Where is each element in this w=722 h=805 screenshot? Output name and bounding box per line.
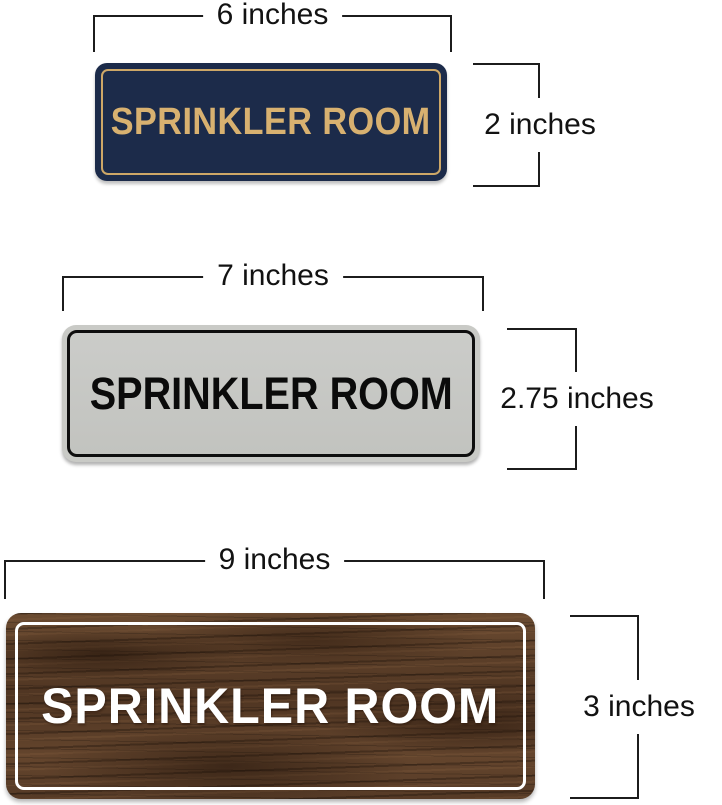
height-dimension-bracket-wood: 3 inches — [570, 615, 639, 799]
width-dimension-bracket-silver: 7 inches — [62, 276, 484, 311]
width-dimension-label-silver: 7 inches — [203, 259, 343, 293]
height-dimension-label-navy: 2 inches — [478, 98, 602, 152]
height-dimension-bracket-silver: 2.75 inches — [507, 328, 577, 470]
sign-inner-border-navy: SPRINKLER ROOM — [101, 69, 441, 175]
product-image: 6 inches SPRINKLER ROOM 2 inches 7 inche… — [0, 0, 722, 805]
sign-inner-border-silver: SPRINKLER ROOM — [67, 330, 475, 457]
sign-inner-border-wood: SPRINKLER ROOM — [15, 622, 526, 790]
width-dimension-label-navy: 6 inches — [203, 0, 343, 32]
sprinkler-sign-silver: SPRINKLER ROOM — [62, 325, 480, 462]
height-dimension-label-silver: 2.75 inches — [494, 372, 659, 426]
sprinkler-sign-navy: SPRINKLER ROOM — [95, 63, 447, 181]
sprinkler-sign-wood: SPRINKLER ROOM — [6, 613, 535, 799]
width-dimension-label-wood: 9 inches — [205, 543, 345, 577]
height-dimension-label-wood: 3 inches — [577, 680, 701, 734]
sign-text-navy: SPRINKLER ROOM — [111, 103, 431, 141]
width-dimension-bracket-navy: 6 inches — [93, 15, 452, 52]
sign-text-silver: SPRINKLER ROOM — [90, 371, 453, 416]
height-dimension-bracket-navy: 2 inches — [473, 63, 540, 187]
width-dimension-bracket-wood: 9 inches — [4, 560, 545, 599]
sign-text-wood: SPRINKLER ROOM — [41, 681, 499, 731]
